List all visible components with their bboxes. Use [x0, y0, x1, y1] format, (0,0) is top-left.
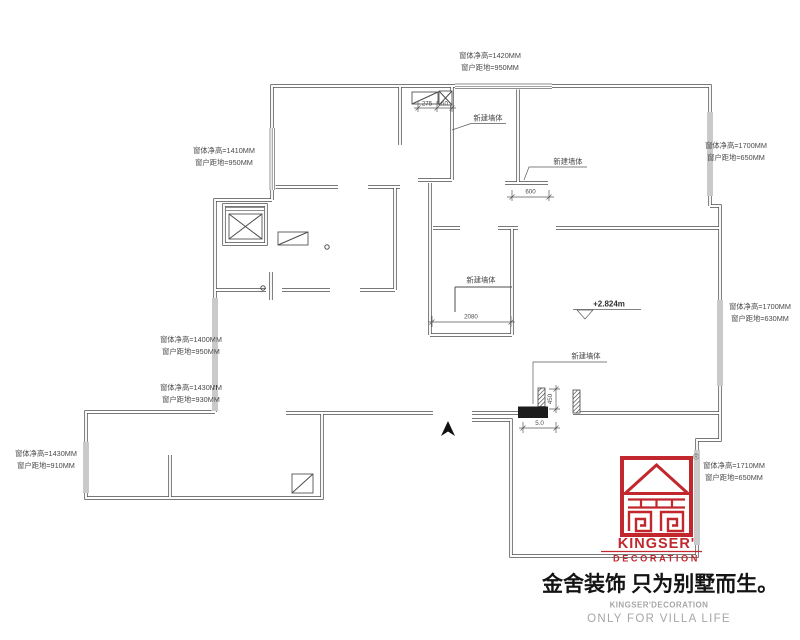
window-symbol-right-middle	[717, 300, 724, 386]
footer: 金舍装饰 只为别墅而生。 KINGSER'DECORATION ONLY FOR…	[541, 572, 778, 625]
window-label-line2: 窗户距地=650MM	[707, 153, 765, 162]
window-label-line2: 窗户距地=950MM	[195, 158, 253, 167]
dimension-5-0: 5.0	[519, 420, 560, 433]
window-symbol-bottom-left	[83, 442, 90, 493]
level-triangle	[577, 310, 593, 319]
new-wall-line-kitchen	[455, 287, 512, 312]
door-pivot-dot	[325, 245, 329, 249]
level-mark: +2.824m	[573, 300, 641, 320]
window-label-line1: 窗体净高=1400MM	[160, 335, 222, 344]
window-label-line2: 窗户距地=930MM	[162, 395, 220, 404]
new-wall-solid	[518, 407, 548, 419]
window-label-line2: 窗户距地=630MM	[731, 314, 789, 323]
new-wall-label-2: 新建墙体	[524, 157, 587, 180]
window-label-line2: 窗户距地=650MM	[705, 473, 763, 482]
window-label-bottom-right: ® 窗体净高=1710MM 窗户距地=650MM	[693, 452, 765, 483]
footer-brand-en: KINGSER'DECORATION	[610, 601, 709, 610]
dimension-text: 60	[441, 101, 448, 108]
window-label-line2: 窗户距地=910MM	[17, 461, 75, 470]
leader-line	[452, 124, 506, 131]
floor-plan-drawing: 600 2080 275 60 450 5.0 新建墙体 新建墙体 新建墙体 新…	[0, 0, 800, 640]
cabinet-counter	[278, 232, 308, 245]
new-wall-hatched-stub	[573, 390, 580, 413]
window-label-line1: 窗体净高=1430MM	[160, 383, 222, 392]
window-label-line2: 窗户距地=950MM	[461, 63, 519, 72]
window-label-right-middle: 窗体净高=1700MM 窗户距地=630MM	[729, 302, 791, 323]
dimension-600: 600	[507, 189, 554, 202]
window-symbol-left-upper	[269, 128, 276, 190]
new-wall-hatched-stub	[538, 388, 545, 407]
window-label-line1: 窗体净高=1420MM	[459, 51, 521, 60]
shaft-vent-lines	[226, 208, 264, 211]
level-text: +2.824m	[593, 300, 625, 309]
window-label-right-upper: 窗体净高=1700MM 窗户距地=650MM	[705, 141, 767, 162]
new-wall-text: 新建墙体	[466, 276, 496, 285]
window-label-line1: 窗体净高=1710MM	[703, 461, 765, 470]
logo-title: KINGSER'	[618, 536, 696, 552]
window-label-line1: 窗体净高=1430MM	[15, 449, 77, 458]
north-arrow-icon	[441, 421, 455, 436]
window-symbol-top	[455, 83, 552, 89]
window-label-top: 窗体净高=1420MM 窗户距地=950MM	[459, 51, 521, 72]
window-label-line1: 窗体净高=1700MM	[729, 302, 791, 311]
window-label-left-upper: 窗体净高=1410MM 窗户距地=950MM	[193, 146, 255, 167]
dimension-450: 450	[547, 385, 560, 413]
elevator-shaft	[226, 208, 264, 240]
new-wall-text: 新建墙体	[571, 352, 601, 361]
new-wall-text: 新建墙体	[473, 114, 503, 123]
logo-subtitle: DECORATION	[613, 554, 700, 564]
shower-tray	[292, 474, 313, 493]
new-wall-label-3: 新建墙体	[466, 276, 496, 285]
dimension-text: 275	[422, 101, 433, 108]
window-label-line1: 窗体净高=1410MM	[193, 146, 255, 155]
dimension-text: 600	[525, 189, 536, 196]
leader-line	[524, 167, 587, 180]
dimension-2080: 2080	[428, 314, 515, 328]
window-label-line1: 窗体净高=1700MM	[705, 141, 767, 150]
dimension-text: 450	[547, 393, 554, 404]
kingser-logo: KINGSER' DECORATION	[601, 458, 702, 564]
dimension-text: 2080	[464, 314, 478, 321]
dimension-text: 5.0	[535, 420, 544, 427]
new-wall-text: 新建墙体	[553, 157, 583, 166]
footer-tagline: ONLY FOR VILLA LIFE	[587, 613, 731, 625]
new-wall-label-1: 新建墙体	[452, 114, 506, 131]
window-label-bottom-left: 窗体净高=1430MM 窗户距地=910MM	[15, 449, 77, 470]
window-label-line2: 窗户距地=950MM	[162, 347, 220, 356]
footer-slogan: 金舍装饰 只为别墅而生。	[541, 572, 778, 596]
window-symbol-bottom-right	[694, 450, 701, 545]
registered-mark: ®	[693, 452, 700, 462]
